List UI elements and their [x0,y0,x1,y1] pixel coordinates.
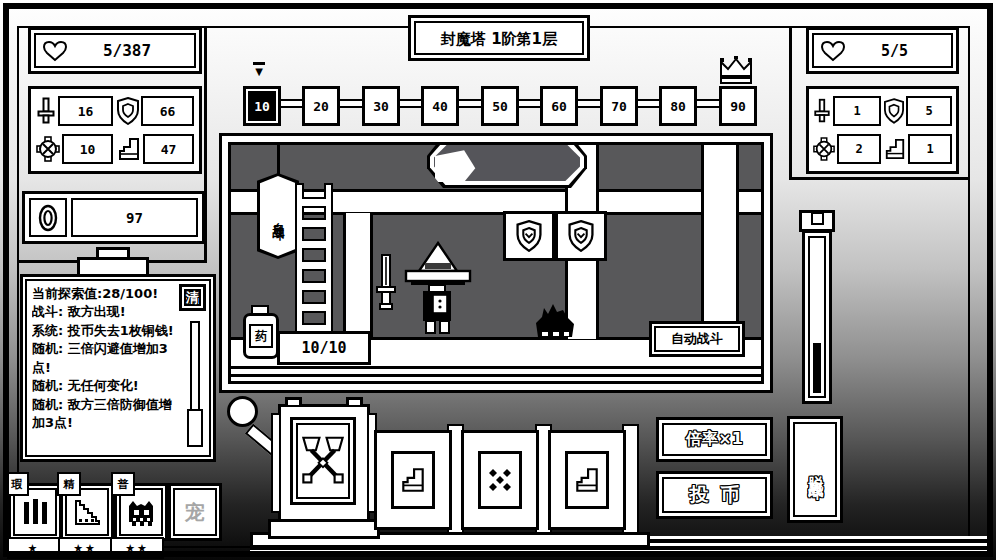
boot-icon [573,466,601,494]
slot-reel-3 [548,430,626,530]
track-node-10[interactable]: 10 [243,86,281,126]
player-accuracy-value: 10 [62,134,113,164]
enemy-defense-value: 5 [906,96,952,126]
enemy-accuracy-stat: 2 [813,133,881,165]
floor-title-text: 封魔塔 1阶第1层 [441,28,557,49]
log-clear-label: 清 [186,289,199,307]
auto-battle-sign: 自动战斗 [257,173,299,259]
player-accuracy-stat: 10 [36,133,113,165]
log-line: 系统: 投币失去1枚铜钱! [32,322,182,340]
cabinet-display [290,417,356,505]
log-line: 随机: 敌方三倍防御值增加3点! [32,396,182,433]
banner-capsule [427,142,587,188]
player-hp-value: 5/387 [67,41,187,60]
player-attack-stat: 16 [36,95,113,127]
player-defense-stat: 66 [117,95,194,127]
unit-2-grade-badge: 精 [57,472,81,496]
floor-progress-track: ▼ 10 20 30 40 50 60 70 80 90 [240,50,760,122]
unit-button-2[interactable]: 精 [60,483,114,541]
log-scrollbar[interactable] [187,321,203,447]
sword-pickup [375,253,397,311]
track-node-70[interactable]: 70 [600,86,638,126]
room-column-right [701,145,739,339]
coin-count: 97 [71,198,198,237]
player-speed-value: 47 [143,134,194,164]
unit-2-stars: ★★ [58,537,112,559]
multiplier-label: 倍率×1 [686,429,743,450]
scene-auto-battle-label: 自动战斗 [671,330,723,348]
shield-icon [117,97,139,125]
cross-diamonds-icon [486,466,514,494]
floor-edge-stripes [231,366,761,382]
enemy-speed-stat: 1 [884,133,952,165]
gauge-cap [799,210,835,232]
right-column-bottom-line [789,177,970,180]
enemy-attack-stat: 1 [813,95,881,127]
log-panel: 当前探索值:28/100! 战斗: 敌方出现! 系统: 投币失去1枚铜钱! 随机… [20,274,216,462]
lever-ball [227,396,258,427]
crossed-swords-emblem [298,431,348,491]
log-line: 随机: 三倍闪避值增加3点! [32,340,182,377]
shield-icon [567,220,595,252]
battle-scene: 自动战斗 [219,133,773,393]
cabinet-pedestal [268,519,380,539]
log-lines: 当前探索值:28/100! 战斗: 敌方出现! 系统: 投币失去1枚铜钱! 随机… [32,285,182,451]
pet-button-label: 宠 [185,499,205,526]
unit-button-3[interactable]: 普 [114,483,168,541]
crosshair-icon [813,136,835,162]
heart-icon [821,40,845,62]
ladder [295,183,333,341]
sword-icon [36,97,56,125]
track-node-20[interactable]: 20 [302,86,340,126]
current-floor-marker: ▼ [243,62,275,75]
insert-coin-button[interactable]: 投币 [656,471,773,519]
player-character [403,241,473,339]
boot-icon [117,136,141,162]
heart-icon [43,40,67,62]
track-node-50[interactable]: 50 [481,86,519,126]
leave-battle-label: 脱离战斗 [806,464,825,476]
player-speed-stat: 47 [117,133,194,165]
stairs-icon [71,496,103,528]
shield-plaque [503,211,555,261]
unit-1-stars: ★ [7,537,60,559]
boot-icon [399,466,427,494]
log-clear-button[interactable]: 清 [179,284,206,311]
right-column-divider [789,28,792,180]
player-defense-value: 66 [141,96,194,126]
coin-icon-cell [29,198,67,237]
enemy-attack-value: 1 [833,96,881,126]
log-scroll-thumb[interactable] [187,409,203,447]
scene-room: 自动战斗 [228,142,764,384]
unit-1-grade-badge: 瑕 [5,472,29,496]
room-column-left [343,213,373,339]
track-node-60[interactable]: 60 [540,86,578,126]
game-screen: 封魔塔 1阶第1层 5/387 16 66 10 47 97 [0,0,996,560]
pet-button[interactable]: 宠 [168,483,222,541]
enemy-defense-stat: 5 [884,95,952,127]
slot-reel-2 [461,430,539,530]
unit-button-1[interactable]: 瑕 [8,483,62,541]
track-node-80[interactable]: 80 [659,86,697,126]
multiplier-button[interactable]: 倍率×1 [656,417,773,462]
player-stats-panel: 16 66 10 47 [28,86,202,174]
slot-cabinet [278,404,370,530]
enemy-hp-value: 5/5 [845,42,944,60]
boot-icon [884,136,906,162]
reel-frame [391,451,435,509]
enemy-accuracy-value: 2 [837,134,881,164]
enemy-stats-panel: 1 5 2 1 [806,86,959,174]
gauge-fill [813,343,821,393]
log-line: 战斗: 敌方出现! [32,303,182,321]
track-node-30[interactable]: 30 [362,86,400,126]
track-node-40[interactable]: 40 [421,86,459,126]
scene-auto-battle-button[interactable]: 自动战斗 [649,321,745,357]
log-line: 当前探索值:28/100! [32,285,182,303]
insert-coin-label: 投币 [678,482,752,508]
reel-frame [565,451,609,509]
sword-icon [813,97,831,125]
coin-panel: 97 [22,191,205,244]
player-attack-value: 16 [58,96,113,126]
coin-icon [38,203,58,233]
potion-jar: 药 [243,305,279,359]
reel-frame [478,451,522,509]
cage-bars-icon [19,496,51,528]
enemy-creature [531,301,579,339]
shield-plaque [555,211,607,261]
shield-icon [884,97,904,125]
slot-reel-1 [374,430,452,530]
crosshair-icon [36,136,60,162]
unit-3-stars: ★★ [110,537,164,559]
monster-face-icon [125,496,157,528]
unit-3-grade-badge: 普 [111,472,135,496]
track-node-90[interactable]: 90 [719,86,757,126]
log-line: 随机: 无任何变化! [32,377,182,395]
crown-icon [717,56,755,86]
enemy-speed-value: 1 [908,134,952,164]
sign-rope [277,145,280,175]
player-hp-panel: 5/387 [28,27,202,74]
potion-label: 药 [249,324,273,348]
gauge-tube [802,230,832,404]
enemy-hp-panel: 5/5 [806,27,959,74]
shield-icon [515,220,543,252]
battle-gauge [799,210,835,404]
leave-battle-button[interactable]: 脱离战斗 [787,416,843,523]
potion-count-box: 10/10 [277,331,371,365]
auto-battle-sign-text: 自动战斗 [270,212,287,220]
